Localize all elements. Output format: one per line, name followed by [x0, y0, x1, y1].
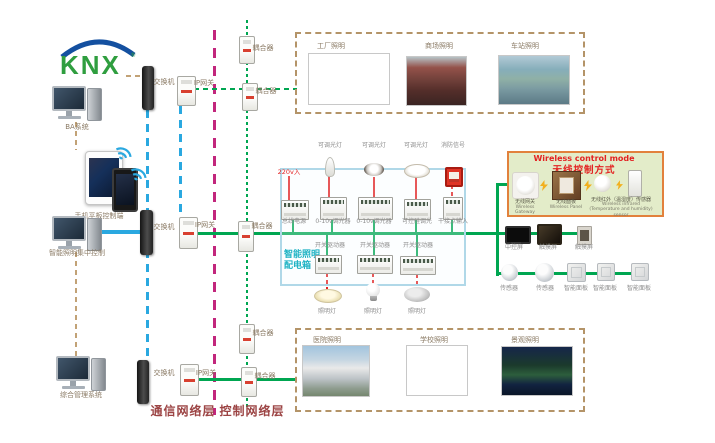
label-lamp-1: 照明灯 [318, 309, 336, 316]
pc-tower-icon [87, 218, 102, 251]
ethernet-line-computer2 [100, 230, 142, 234]
label-coupler-1: 耦合器 [253, 44, 274, 52]
ctrl-layer-label: 控制网络层 [219, 402, 284, 419]
label-smart-panel-1: 智能面板 [564, 286, 588, 293]
switch-driver-device-3 [400, 256, 436, 275]
label-dimmable-3: 可调光灯 [404, 143, 428, 150]
switch-device-1 [142, 66, 154, 110]
photo-factory [309, 54, 389, 104]
monitor-base [62, 386, 85, 389]
label-fire-signal: 消防信号 [441, 143, 465, 150]
label-dimmable-1: 可调光灯 [318, 143, 342, 150]
label-landscape-lighting: 景观照明 [511, 336, 539, 344]
monitor-base [58, 116, 81, 119]
photo-hospital [303, 346, 369, 396]
label-mall-lighting: 商场照明 [425, 42, 453, 50]
label-central-screen: 中控屏 [505, 245, 523, 252]
monitor-icon [52, 216, 86, 241]
label-gateway-3: IP网关 [196, 369, 216, 377]
label-coupler-2: 耦合器 [256, 87, 277, 95]
photo-mall [407, 57, 466, 105]
label-management-system: 综合管理系统 [60, 391, 102, 399]
fire-alarm-icon [445, 167, 463, 187]
label-driver-2: 开关驱动器 [360, 243, 390, 250]
monitor-icon [52, 86, 86, 111]
label-driver-1: 开关驱动器 [315, 243, 345, 250]
label-coupler-4: 耦合器 [253, 329, 274, 337]
knx-logo-registered: ® [130, 52, 136, 59]
scr-dimmer-device [404, 199, 431, 220]
signal-bolt-icon [616, 180, 623, 190]
dimmer-device-1 [320, 197, 347, 220]
label-wireless-gateway-en: Wireless Gateway [505, 205, 545, 216]
sensor-dome-icon-1 [501, 264, 518, 281]
knx-link-sensors-3 [584, 272, 598, 275]
label-touch-screen-2: 触摸屏 [575, 245, 593, 252]
label-scr-dimmer: 可控硅调光 [402, 219, 432, 226]
label-dimmer-2: 0-10v调光器 [356, 219, 391, 226]
wireless-panel-icon [552, 171, 581, 200]
label-gateway-2: IP网关 [195, 221, 215, 229]
ceiling-light-icon [404, 164, 430, 178]
ceiling-lamp-icon [314, 289, 342, 303]
photo-school [407, 346, 467, 395]
label-bus-power: 总线电源 [282, 219, 306, 226]
label-driver-3: 开关驱动器 [403, 243, 433, 250]
photo-landscape [502, 347, 572, 395]
bus-power-device [281, 200, 309, 220]
downlight-icon [364, 163, 384, 176]
label-dry-contact: 干接点输入 [438, 219, 468, 226]
label-lamp-2: 照明灯 [364, 309, 382, 316]
label-wireless-panel-en: Wireless Panel [546, 205, 586, 210]
computer-management-system [56, 356, 106, 392]
signal-bolt-icon [584, 180, 592, 191]
label-switch-3: 交换机 [154, 369, 175, 377]
comm-layer-label: 通信网络层 [150, 402, 215, 419]
knx-logo-text: KNX [60, 50, 121, 81]
label-gateway-1: IP网关 [194, 79, 214, 87]
label-smart-panel-3: 智能面板 [627, 286, 651, 293]
smart-panel-icon-2 [597, 263, 615, 281]
knx-lighting-diagram: KNX ® BA系统 手机平板控制端 智能照明集中控制 综合管理 [0, 0, 715, 443]
label-sensor-1: 传感器 [500, 286, 518, 293]
candle-lamp-icon [325, 157, 335, 177]
bulb-lamp-icon [366, 283, 380, 297]
smart-panel-icon-1 [567, 263, 586, 282]
monitor-icon [56, 356, 90, 381]
switch-device-3 [137, 360, 149, 404]
knx-link-sensors-2 [554, 272, 568, 275]
photo-station [499, 56, 569, 104]
computer-ba-system [52, 86, 102, 122]
label-station-lighting: 车站照明 [511, 42, 539, 50]
label-ba-system: BA系统 [65, 123, 89, 131]
wireless-sensor-dome-icon [594, 175, 611, 192]
oval-lamp-icon [404, 287, 430, 302]
label-hospital-lighting: 医院照明 [313, 336, 341, 344]
label-factory-lighting: 工厂照明 [317, 42, 345, 50]
touch-screen-icon-2 [577, 226, 592, 245]
label-lamp-3: 照明灯 [408, 309, 426, 316]
pc-tower-icon [91, 358, 106, 391]
label-touch-screen-1: 触摸屏 [539, 245, 557, 252]
label-smart-panel-2: 智能面板 [593, 286, 617, 293]
switch-driver-device-1 [315, 255, 342, 274]
label-switch-2: 交换机 [154, 223, 175, 231]
signal-bolt-icon [540, 180, 548, 191]
label-switch-1: 交换机 [154, 78, 175, 86]
label-dimmer-1: 0-10v调光器 [315, 219, 350, 226]
knx-link-sensors-4 [613, 272, 632, 275]
computer-lighting-control [52, 216, 102, 252]
knx-link-sensors-1 [518, 272, 536, 275]
wireless-gateway-icon [512, 172, 539, 199]
ethernet-line-gateway-chain [179, 106, 182, 216]
label-sensor-2: 传感器 [536, 286, 554, 293]
pc-tower-icon [87, 88, 102, 121]
switch-driver-device-2 [357, 255, 393, 274]
switch-device-2 [140, 210, 153, 255]
bulb-base [370, 296, 377, 301]
dry-contact-device [443, 197, 463, 220]
mgmt-line-bottom [75, 252, 77, 356]
label-coupler-3: 耦合器 [252, 222, 273, 230]
wireless-sensor-body-icon [628, 170, 642, 197]
label-power-input: 220v入 [278, 169, 301, 176]
label-coupler-5: 耦合器 [255, 372, 276, 380]
knx-right-trunk [496, 183, 499, 276]
knx-logo: KNX ® [58, 36, 142, 88]
smart-panel-icon-3 [631, 263, 649, 281]
label-lighting-central-control: 智能照明集中控制 [49, 249, 105, 257]
label-dimmable-2: 可调光灯 [362, 143, 386, 150]
label-school-lighting: 学校照明 [420, 336, 448, 344]
sensor-dome-icon-2 [535, 263, 554, 282]
label-wireless-sensor-en: Wireless infrared (Temperature and humid… [587, 202, 655, 218]
touch-screen-icon-1 [537, 224, 562, 245]
dimmer-device-2 [358, 197, 393, 220]
